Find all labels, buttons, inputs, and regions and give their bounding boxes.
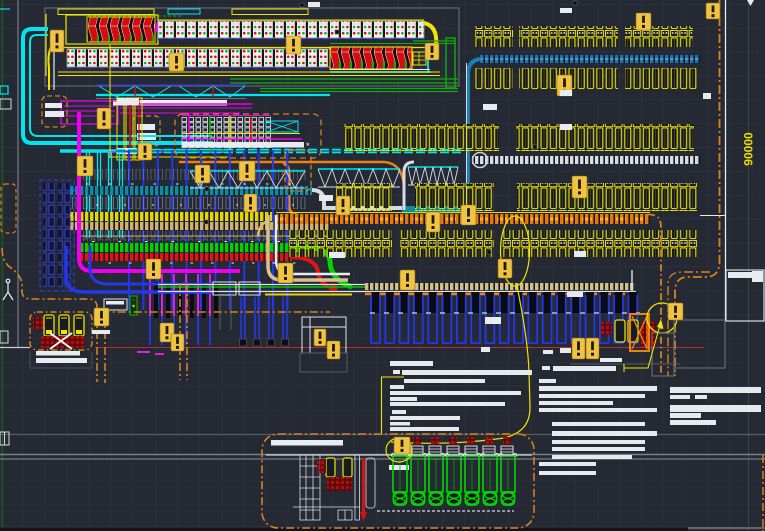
svg-text:90000: 90000	[742, 132, 756, 166]
